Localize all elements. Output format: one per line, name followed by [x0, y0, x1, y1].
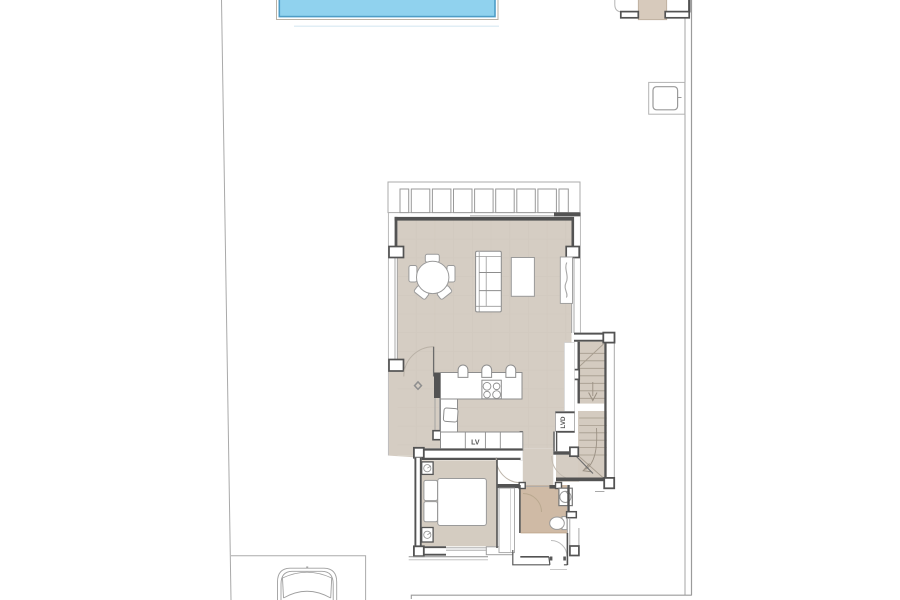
- svg-text:LVD: LVD: [560, 416, 567, 428]
- svg-text:LV: LV: [471, 440, 480, 447]
